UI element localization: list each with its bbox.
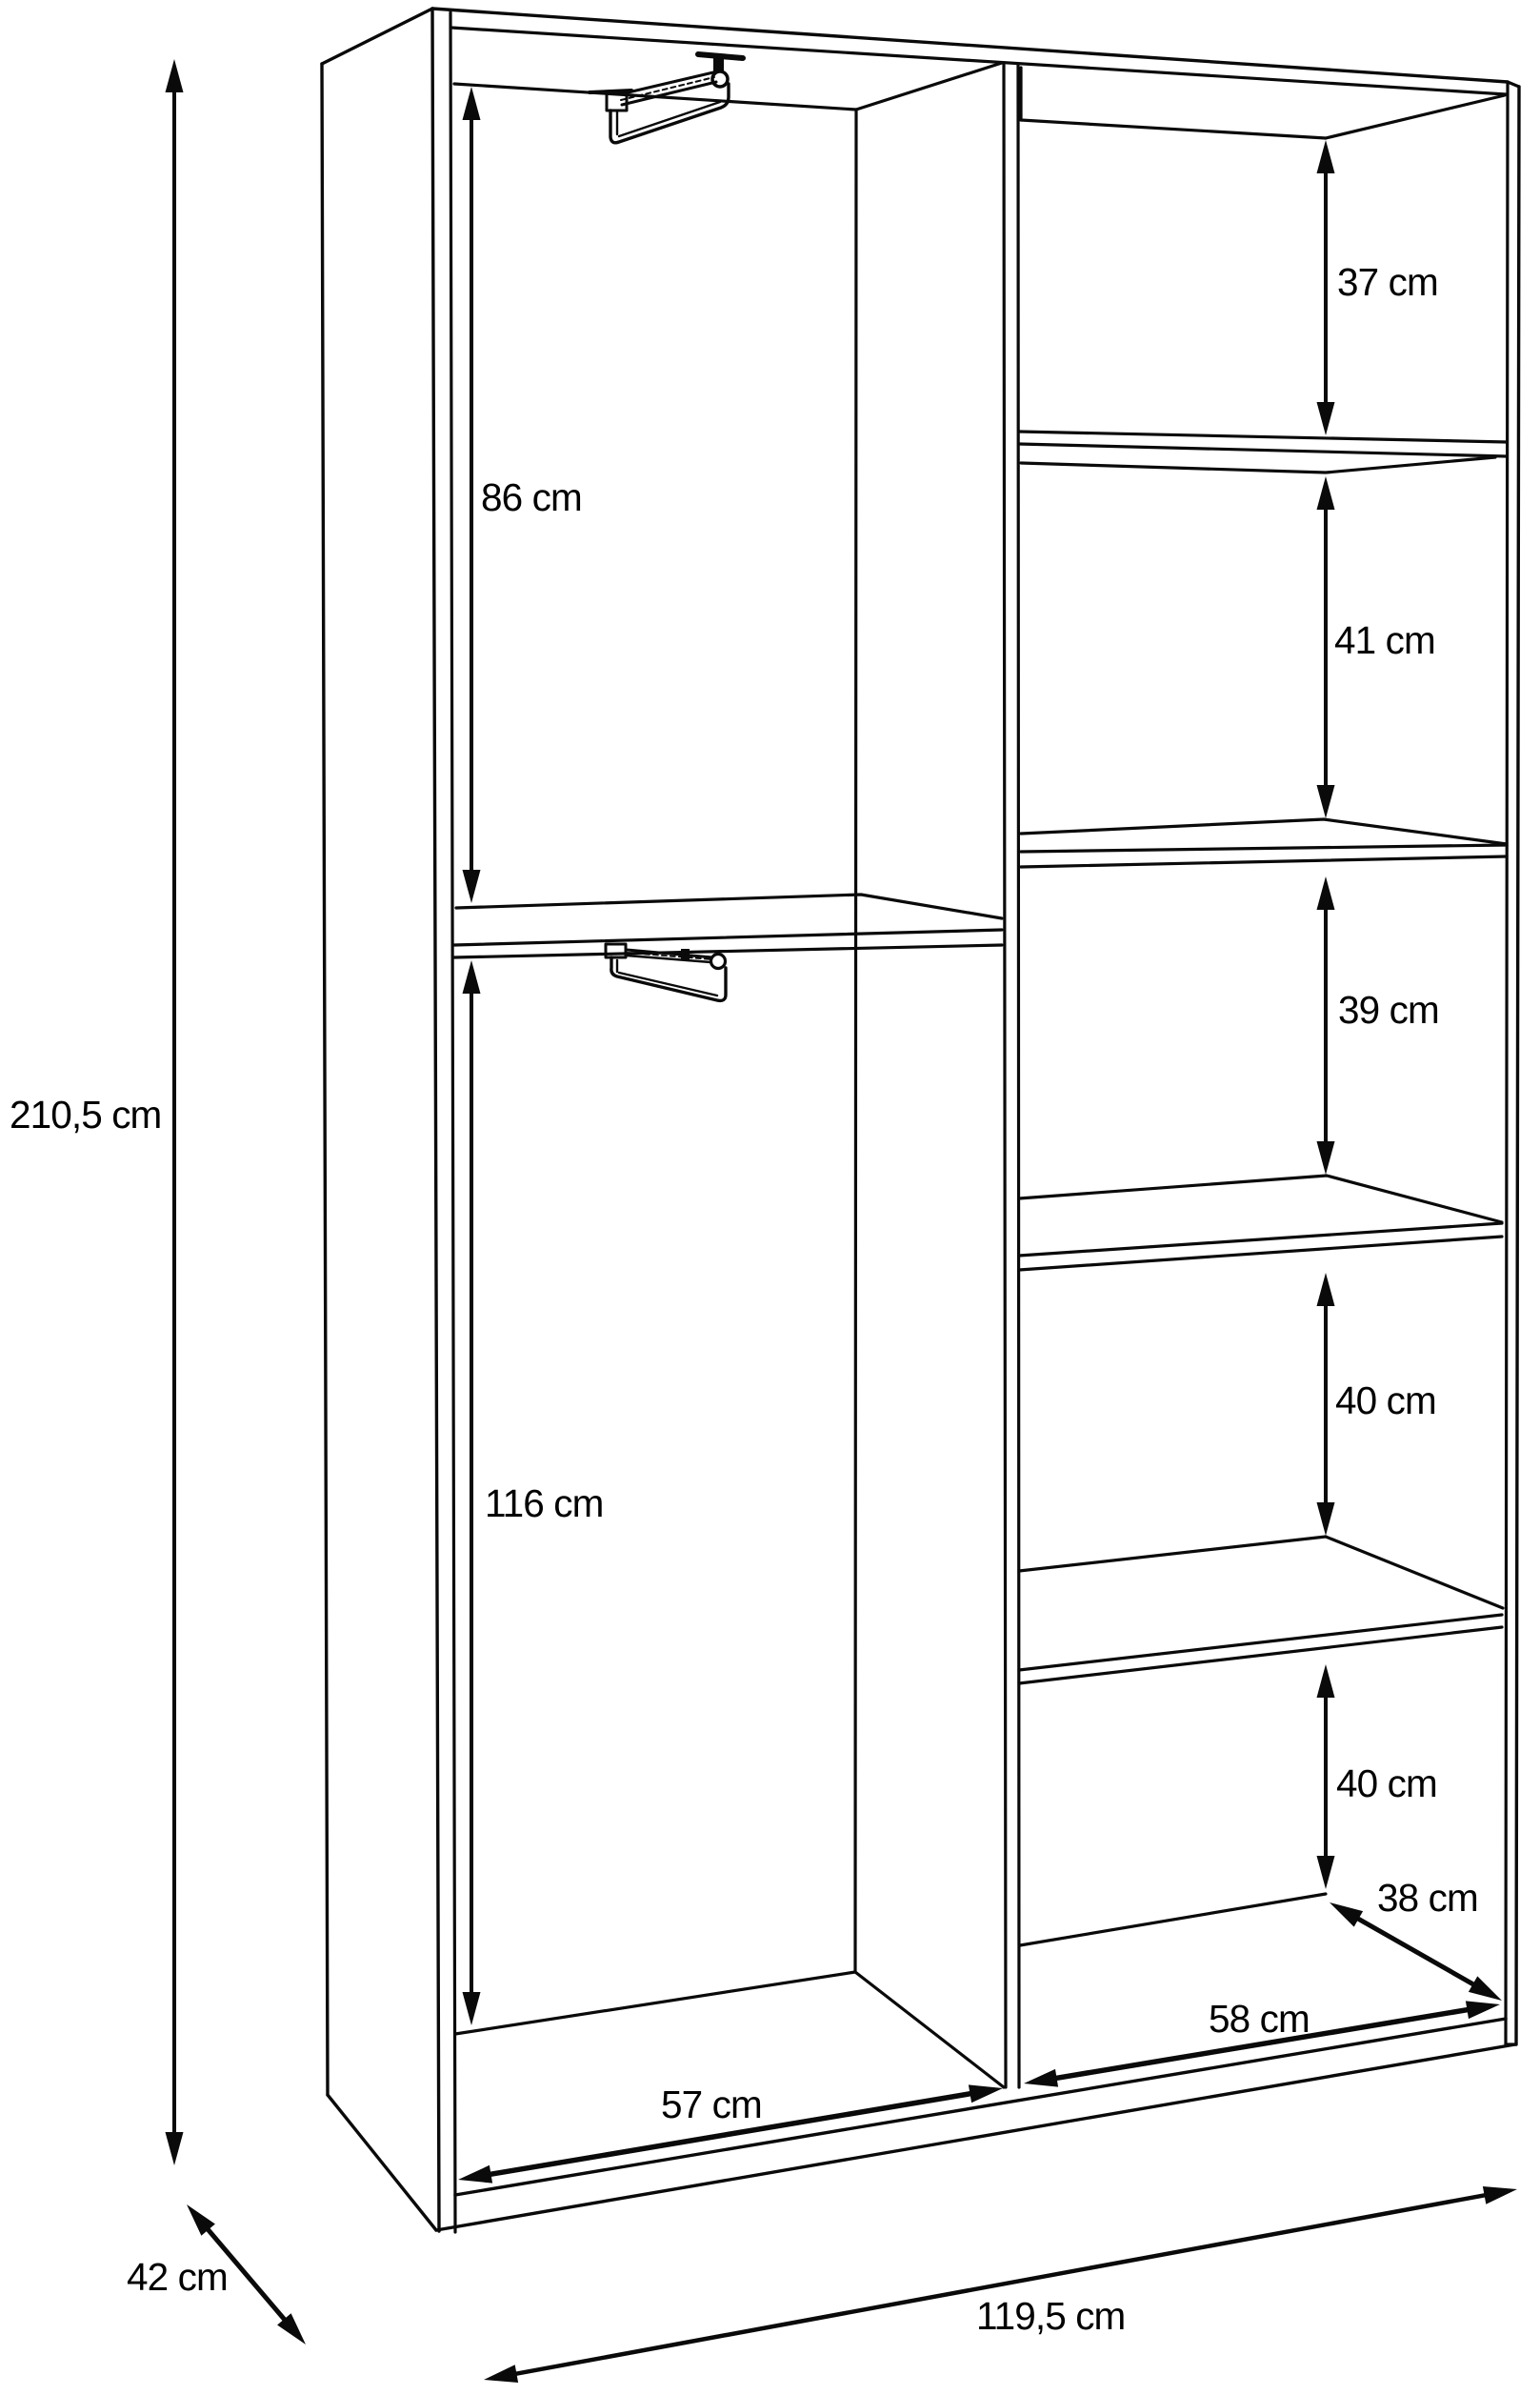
svg-text:37 cm: 37 cm xyxy=(1337,260,1438,304)
svg-text:39 cm: 39 cm xyxy=(1338,988,1439,1032)
svg-text:119,5 cm: 119,5 cm xyxy=(976,2294,1125,2338)
svg-text:40 cm: 40 cm xyxy=(1335,1379,1436,1422)
svg-text:116 cm: 116 cm xyxy=(485,1481,603,1525)
svg-text:210,5 cm: 210,5 cm xyxy=(10,1093,161,1137)
svg-text:38 cm: 38 cm xyxy=(1377,1876,1478,1920)
svg-text:41 cm: 41 cm xyxy=(1334,618,1435,662)
svg-text:42 cm: 42 cm xyxy=(127,2255,228,2299)
svg-text:86 cm: 86 cm xyxy=(481,475,582,519)
svg-text:40 cm: 40 cm xyxy=(1336,1761,1437,1805)
svg-text:57 cm: 57 cm xyxy=(661,2083,762,2126)
svg-text:58 cm: 58 cm xyxy=(1209,1997,1310,2041)
